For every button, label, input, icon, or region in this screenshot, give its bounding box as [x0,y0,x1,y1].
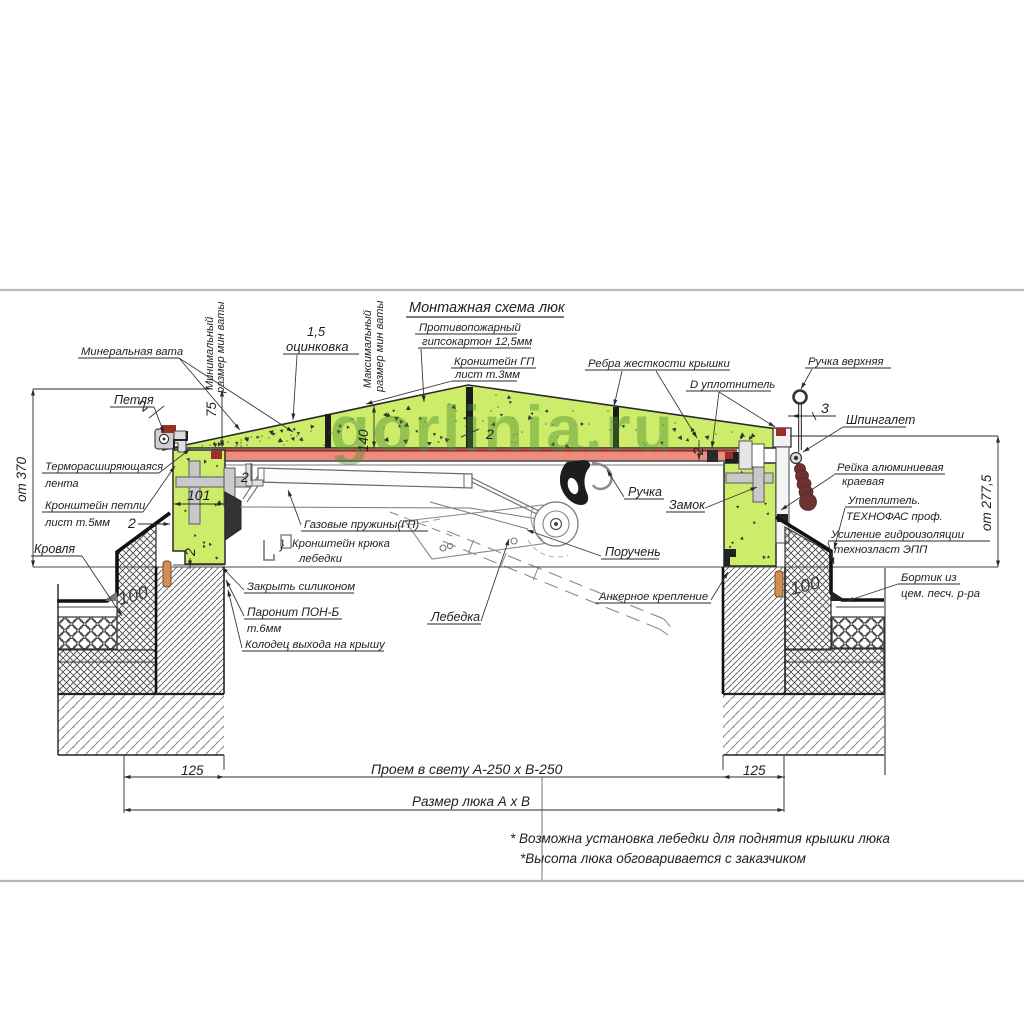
svg-text:лист т.5мм: лист т.5мм [44,517,110,529]
svg-text:Шпингалет: Шпингалет [846,413,915,427]
svg-text:Минеральная вата: Минеральная вата [81,346,183,358]
svg-text:Ребра жесткости крышки: Ребра жесткости крышки [588,358,730,370]
svg-text:гипсокартон 12,5мм: гипсокартон 12,5мм [422,336,533,348]
svg-text:Замок: Замок [669,498,706,512]
svg-text:Усиление гидроизоляции: Усиление гидроизоляции [830,529,965,541]
svg-text:Рейка алюминиевая: Рейка алюминиевая [837,462,944,474]
svg-text:цем. песч. р-ра: цем. песч. р-ра [901,588,980,600]
svg-text:2: 2 [127,515,136,531]
svg-text:101: 101 [187,487,210,503]
svg-text:оцинковка: оцинковка [286,339,349,354]
svg-text:75: 75 [204,401,219,417]
svg-text:Петля: Петля [114,393,154,407]
svg-text:2: 2 [485,426,494,442]
svg-text:gorlinia.ru: gorlinia.ru [330,392,675,465]
svg-text:т.6мм: т.6мм [247,623,281,635]
svg-text:Газовые пружины(ГП): Газовые пружины(ГП) [304,519,419,531]
svg-text:Ручка: Ручка [628,485,662,499]
svg-text:ТЕХНОФАС проф.: ТЕХНОФАС проф. [846,511,943,523]
svg-text:D уплотнитель: D уплотнитель [690,379,775,391]
svg-text:Кронштейн ГП: Кронштейн ГП [454,356,535,368]
svg-text:размер мин ваты: размер мин ваты [215,302,227,394]
svg-text:Противопожарный: Противопожарный [419,322,521,334]
svg-text:1,5: 1,5 [307,324,326,339]
svg-text:Поручень: Поручень [605,545,661,559]
svg-text:Закрыть силиконом: Закрыть силиконом [247,581,355,593]
svg-text:размер мин ваты: размер мин ваты [374,301,386,393]
svg-text:125: 125 [743,763,766,778]
svg-text:Максимальный: Максимальный [362,310,374,388]
svg-text:Проем в свету А-250 х В-250: Проем в свету А-250 х В-250 [371,761,563,777]
svg-text:лента: лента [44,478,79,490]
svg-text:лебедки: лебедки [298,553,343,565]
svg-text:Монтажная схема люк: Монтажная схема люк [409,300,566,316]
svg-text:лист т.3мм: лист т.3мм [454,369,520,381]
svg-text:Бортик из: Бортик из [901,572,957,584]
svg-text:Размер люка А х В: Размер люка А х В [412,794,530,809]
svg-text:Кровля: Кровля [34,542,75,556]
svg-text:}: } [278,537,285,552]
svg-text:Анкерное крепление: Анкерное крепление [598,591,708,603]
svg-text:140: 140 [356,429,371,452]
svg-text:технозласт ЭПП: технозласт ЭПП [834,544,928,556]
svg-text:*Высота люка обговаривается с: *Высота люка обговаривается с заказчиком [520,851,806,866]
svg-text:2: 2 [182,548,198,557]
svg-text:от 370: от 370 [14,456,29,502]
svg-text:2: 2 [240,469,249,485]
svg-text:* Возможна установка лебедки д: * Возможна установка лебедки для подняти… [510,831,890,846]
svg-text:3: 3 [821,400,829,416]
svg-text:Лебедка: Лебедка [430,610,480,624]
svg-text:125: 125 [181,763,204,778]
svg-text:Кронштейн петли: Кронштейн петли [45,500,146,512]
svg-text:от 277,5: от 277,5 [979,474,994,531]
svg-text:Утеплитель.: Утеплитель. [847,495,921,507]
svg-text:Ручка верхняя: Ручка верхняя [808,356,884,368]
svg-text:краевая: краевая [842,476,884,488]
svg-text:Кронштейн крюка: Кронштейн крюка [292,538,390,550]
svg-text:Паронит ПОН-Б: Паронит ПОН-Б [247,605,340,619]
svg-text:Терморасширяющаяся: Терморасширяющаяся [45,461,163,473]
svg-text:Колодец выхода на крышу: Колодец выхода на крышу [245,639,386,651]
